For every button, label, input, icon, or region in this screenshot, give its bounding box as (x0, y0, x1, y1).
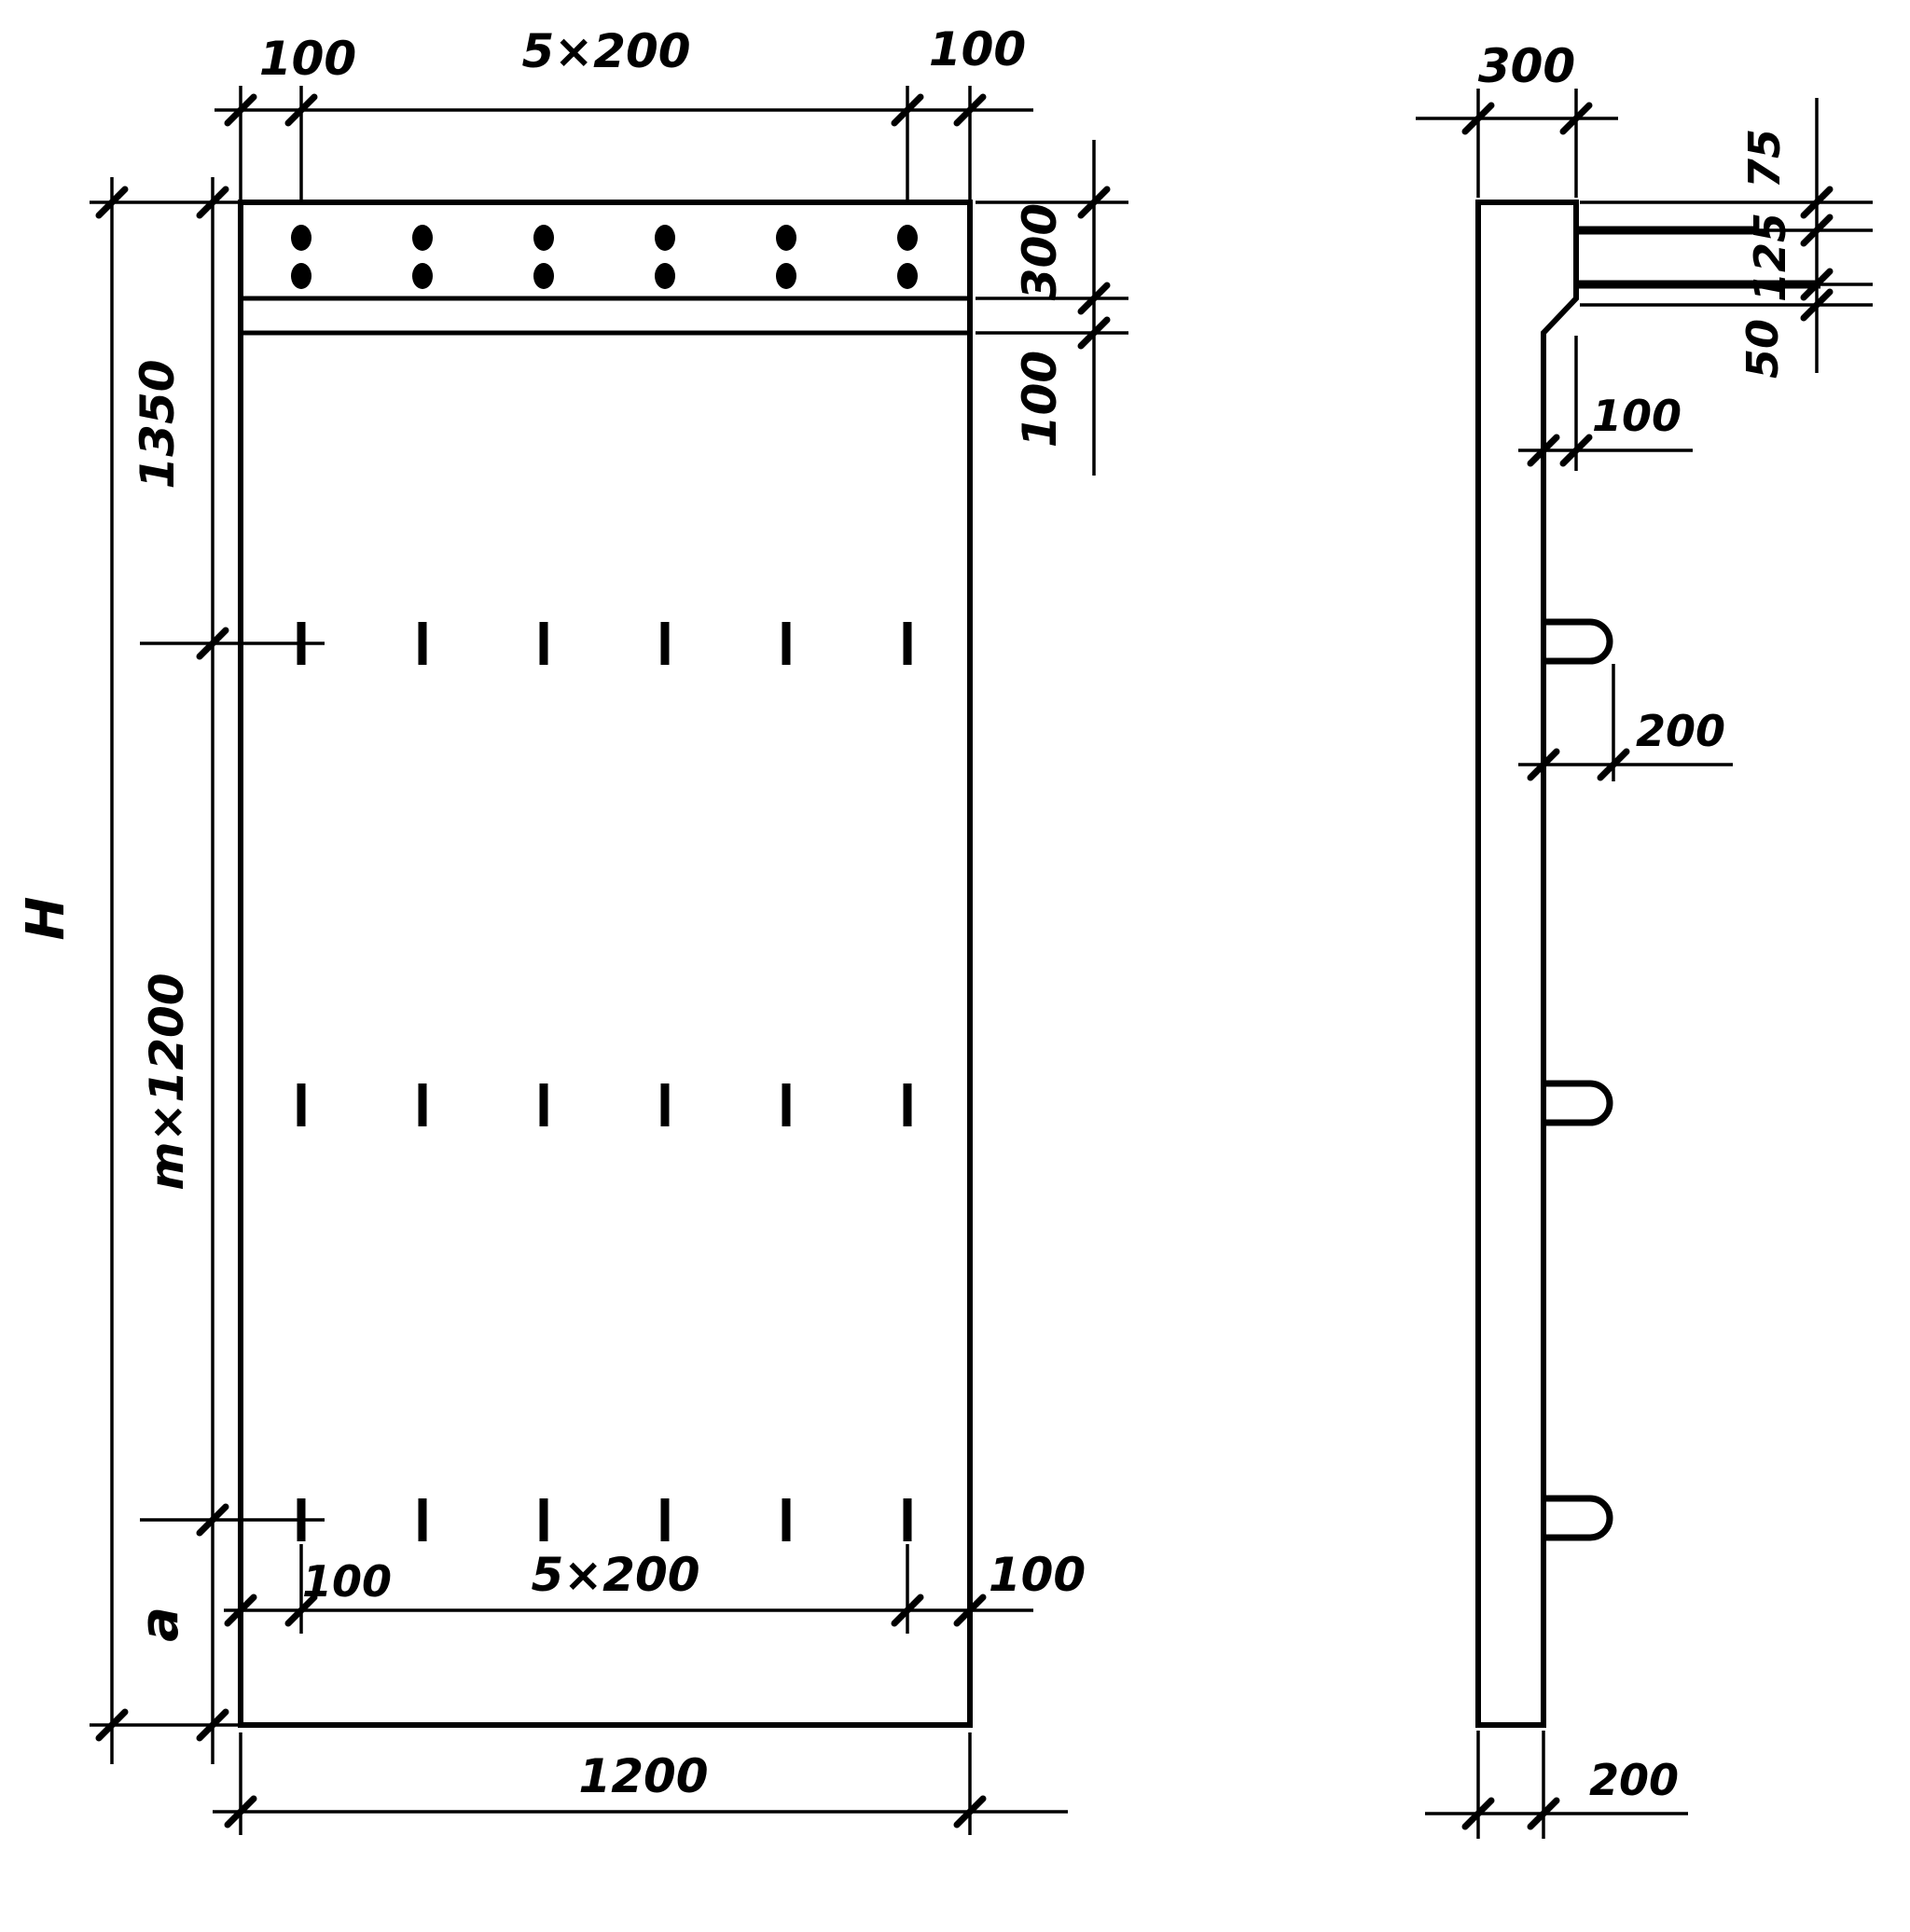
front-width-dimension: 1200 (213, 1732, 1068, 1835)
side-offset-top-label: 75 (1739, 129, 1790, 188)
side-top-dimension: 300 (1416, 39, 1618, 198)
side-bottom-thickness-label: 200 (1589, 1755, 1679, 1805)
side-wall-offset-label: 100 (1592, 391, 1682, 441)
side-top-depth-label: 300 (1478, 39, 1575, 93)
front-width-label: 1200 (578, 1749, 708, 1803)
front-top-right-margin-label: 100 (929, 22, 1026, 76)
flange-dots (291, 225, 918, 289)
front-top-dimension: 100 5×200 100 (215, 22, 1033, 202)
front-top-left-margin-label: 100 (259, 32, 356, 86)
hook-loop-2 (1543, 1083, 1610, 1123)
rebar-dash-row-2 (301, 1083, 907, 1126)
side-right-dimension: 75 125 50 (1580, 98, 1873, 379)
front-flange-height-label: 300 (1013, 203, 1067, 300)
hook-loop-1 (1543, 622, 1610, 661)
side-bottom-dimension: 200 (1425, 1731, 1688, 1839)
front-overall-height-label: H (16, 897, 76, 941)
front-left-dimension: H 1350 m×1200 a (16, 177, 325, 1764)
front-bottom-dimension: 100 5×200 100 (224, 1544, 1086, 1634)
side-offset-middle-label: 125 (1745, 213, 1795, 302)
front-right-dimension: 300 100 (976, 140, 1128, 476)
rebar-dash-row-1 (301, 622, 907, 665)
rebar-dash-row-3 (301, 1498, 907, 1541)
side-hook-protrusion-label: 200 (1636, 706, 1725, 756)
side-offset-bottom-label: 50 (1737, 319, 1788, 379)
front-top-spacing-label: 5×200 (521, 24, 690, 78)
technical-drawing: 100 5×200 100 300 100 (0, 0, 1910, 1932)
front-middle-segment-label: m×1200 (140, 973, 194, 1190)
drawing-sheet: 100 5×200 100 300 100 (0, 0, 1910, 1932)
hook-loop-3 (1543, 1498, 1610, 1538)
side-hook-dimension: 200 (1518, 664, 1733, 781)
front-top-segment-label: 1350 (131, 359, 185, 489)
front-view: 100 5×200 100 300 100 (16, 22, 1128, 1835)
side-view: 300 75 125 50 100 (1416, 39, 1873, 1839)
front-bottom-left-margin-label: 100 (302, 1556, 392, 1607)
front-panel-outline (241, 202, 970, 1725)
front-bottom-segment-label: a (130, 1607, 190, 1642)
front-bottom-right-margin-label: 100 (989, 1548, 1086, 1602)
front-bottom-spacing-label: 5×200 (531, 1548, 699, 1602)
front-strip-height-label: 100 (1013, 351, 1067, 448)
